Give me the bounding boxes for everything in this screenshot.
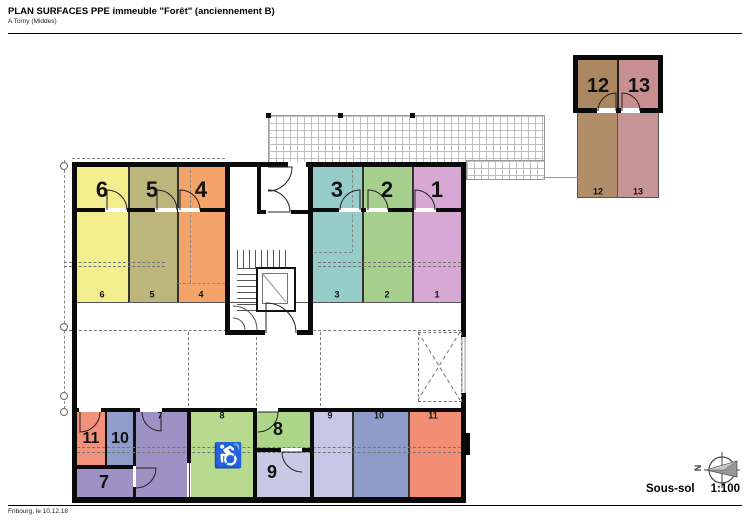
room-9-number: 9 — [267, 463, 277, 481]
door-wall-left — [77, 208, 228, 212]
east-wall-notch — [461, 433, 470, 455]
gap-door-8 — [257, 408, 278, 412]
block1213-west — [573, 55, 578, 113]
left-block-dash-1 — [64, 262, 165, 263]
parking1213-bottom — [577, 197, 659, 198]
footer-rule — [8, 505, 742, 506]
corridor-dash-v2 — [256, 332, 257, 406]
north-label: N — [692, 465, 702, 472]
right-block-dash-1 — [318, 262, 461, 263]
room-9 — [257, 452, 310, 497]
room-11-number: 11 — [83, 431, 100, 447]
room-6-number: 6 — [96, 179, 108, 201]
place-date: Fribourg, le 10.12.18 — [8, 508, 68, 515]
block1213-east — [658, 55, 663, 113]
divider-p10-p11 — [408, 412, 410, 497]
corridor-dash-v1 — [188, 332, 189, 406]
parking-8-number: 8 — [219, 412, 224, 421]
plan-scale: Sous-sol 1:100 — [646, 483, 740, 495]
room-7-number: 7 — [99, 473, 109, 491]
level-label: Sous-sol — [646, 483, 695, 495]
cave-2-number: 2 — [384, 291, 389, 300]
parking-12 — [578, 113, 618, 197]
canopy-post — [410, 113, 415, 118]
wheelchair-icon: ♿ — [213, 442, 243, 471]
room4-dash-v — [190, 170, 191, 283]
corridor-dash-v3 — [320, 332, 321, 406]
divider-p9-p10 — [352, 412, 354, 497]
divider-2-1 — [412, 167, 414, 302]
divider-11-10 — [105, 412, 107, 465]
parking-12-number: 12 — [593, 188, 603, 197]
parking-13-number: 13 — [633, 188, 643, 197]
south-wall — [72, 497, 466, 503]
parking1213-left — [577, 113, 578, 198]
cave-4-number: 4 — [198, 291, 203, 300]
cave-6-number: 6 — [99, 291, 104, 300]
survey-marker — [60, 392, 68, 400]
left-block-dash-2 — [64, 266, 165, 267]
gap-entry-inner — [266, 210, 291, 214]
parking1213-right — [658, 113, 659, 198]
gap-door-9 — [281, 448, 302, 452]
room-8 — [257, 412, 310, 448]
divider-p7-p8 — [187, 408, 191, 463]
gap-door-6 — [105, 208, 127, 212]
canopy-grid-main — [268, 115, 545, 164]
north-wall — [72, 162, 466, 167]
divider-5-4 — [177, 167, 179, 302]
parking1213-divider — [617, 113, 618, 198]
parking-9 — [314, 412, 352, 497]
floor-plan: 6543211213111078965432178910111213♿ — [0, 0, 750, 530]
bottom-axis-dash-2 — [77, 452, 461, 453]
right-block-dash-2 — [318, 266, 461, 267]
entry-west-wall — [257, 167, 261, 212]
divider-6-5 — [128, 167, 130, 302]
room3-dash-h — [314, 252, 352, 253]
parking-13 — [618, 113, 658, 197]
cave-3-number: 3 — [334, 291, 339, 300]
scale-value: 1:100 — [711, 483, 740, 495]
gap-door-4 — [178, 208, 200, 212]
room-5-number: 5 — [146, 179, 158, 201]
block1213-south — [573, 108, 663, 113]
parking-7 — [136, 412, 187, 497]
parking-11-number: 11 — [428, 412, 438, 421]
north-terrain-dash — [72, 158, 225, 159]
canopy-grid-east — [466, 160, 545, 180]
survey-marker — [60, 162, 68, 170]
smallrooms-right-wall — [310, 408, 314, 497]
cave-1-number: 1 — [434, 291, 439, 300]
ramp-void — [418, 332, 462, 402]
cave-5-number: 5 — [149, 291, 154, 300]
stair-upper-flight — [237, 250, 290, 268]
parking-7-number: 7 — [157, 412, 162, 421]
gap-door-2 — [366, 208, 388, 212]
room-12-number: 12 — [587, 76, 609, 96]
room-10-number: 10 — [111, 431, 129, 447]
divider-3-2 — [362, 167, 364, 302]
survey-marker — [60, 408, 68, 416]
block1213-north — [573, 55, 663, 60]
elevator-cab — [262, 273, 288, 304]
gap-door-3 — [339, 208, 361, 212]
canopy-post — [266, 113, 271, 118]
room-3-number: 3 — [331, 179, 343, 201]
gap-door-13 — [621, 108, 640, 113]
canopy-link-line — [543, 177, 578, 178]
parking-11 — [410, 412, 461, 497]
gap-door-12 — [597, 108, 616, 113]
stair-east-wall — [308, 162, 313, 335]
parking-10 — [354, 412, 408, 497]
room-13-number: 13 — [628, 76, 650, 96]
stair-left-flight — [237, 268, 257, 314]
gap-door-5 — [155, 208, 177, 212]
room-1-number: 1 — [431, 179, 443, 201]
room-2-number: 2 — [381, 179, 393, 201]
parking-10-number: 10 — [374, 412, 384, 421]
property-line — [64, 160, 65, 414]
gap-door-7 — [133, 466, 136, 487]
room-4-number: 4 — [195, 179, 207, 201]
divider-7-8-lower — [189, 463, 190, 497]
stair-west-wall — [225, 162, 230, 335]
canopy-post — [338, 113, 343, 118]
room7-top-wall — [77, 465, 135, 469]
survey-marker — [60, 323, 68, 331]
room-8-number: 8 — [273, 420, 283, 438]
gap-door-1 — [414, 208, 436, 212]
west-wall — [72, 162, 77, 502]
gap-stair-door — [265, 330, 297, 335]
smallrooms-left-wall — [253, 408, 257, 497]
room4-dash-h — [178, 283, 225, 284]
divider-12-13 — [617, 60, 619, 108]
gap-door-11 — [79, 408, 101, 412]
parking-9-number: 9 — [327, 412, 332, 421]
gap-entry-door — [288, 162, 306, 167]
plan-sheet: PLAN SURFACES PPE immeuble "Forêt" (anci… — [0, 0, 750, 530]
